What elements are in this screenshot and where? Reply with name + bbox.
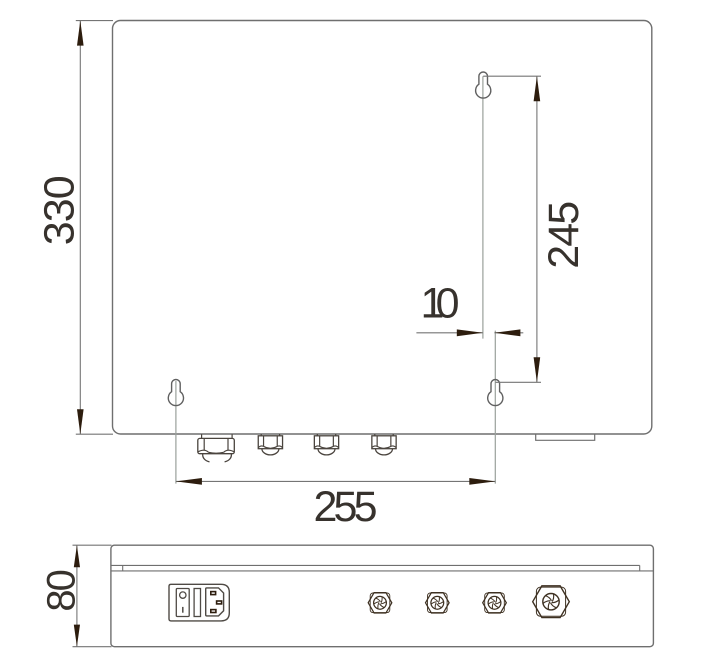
svg-text:10: 10 <box>421 279 460 327</box>
svg-text:330: 330 <box>36 175 84 245</box>
svg-text:245: 245 <box>540 201 588 269</box>
svg-text:255: 255 <box>314 483 378 531</box>
svg-text:80: 80 <box>40 569 84 612</box>
